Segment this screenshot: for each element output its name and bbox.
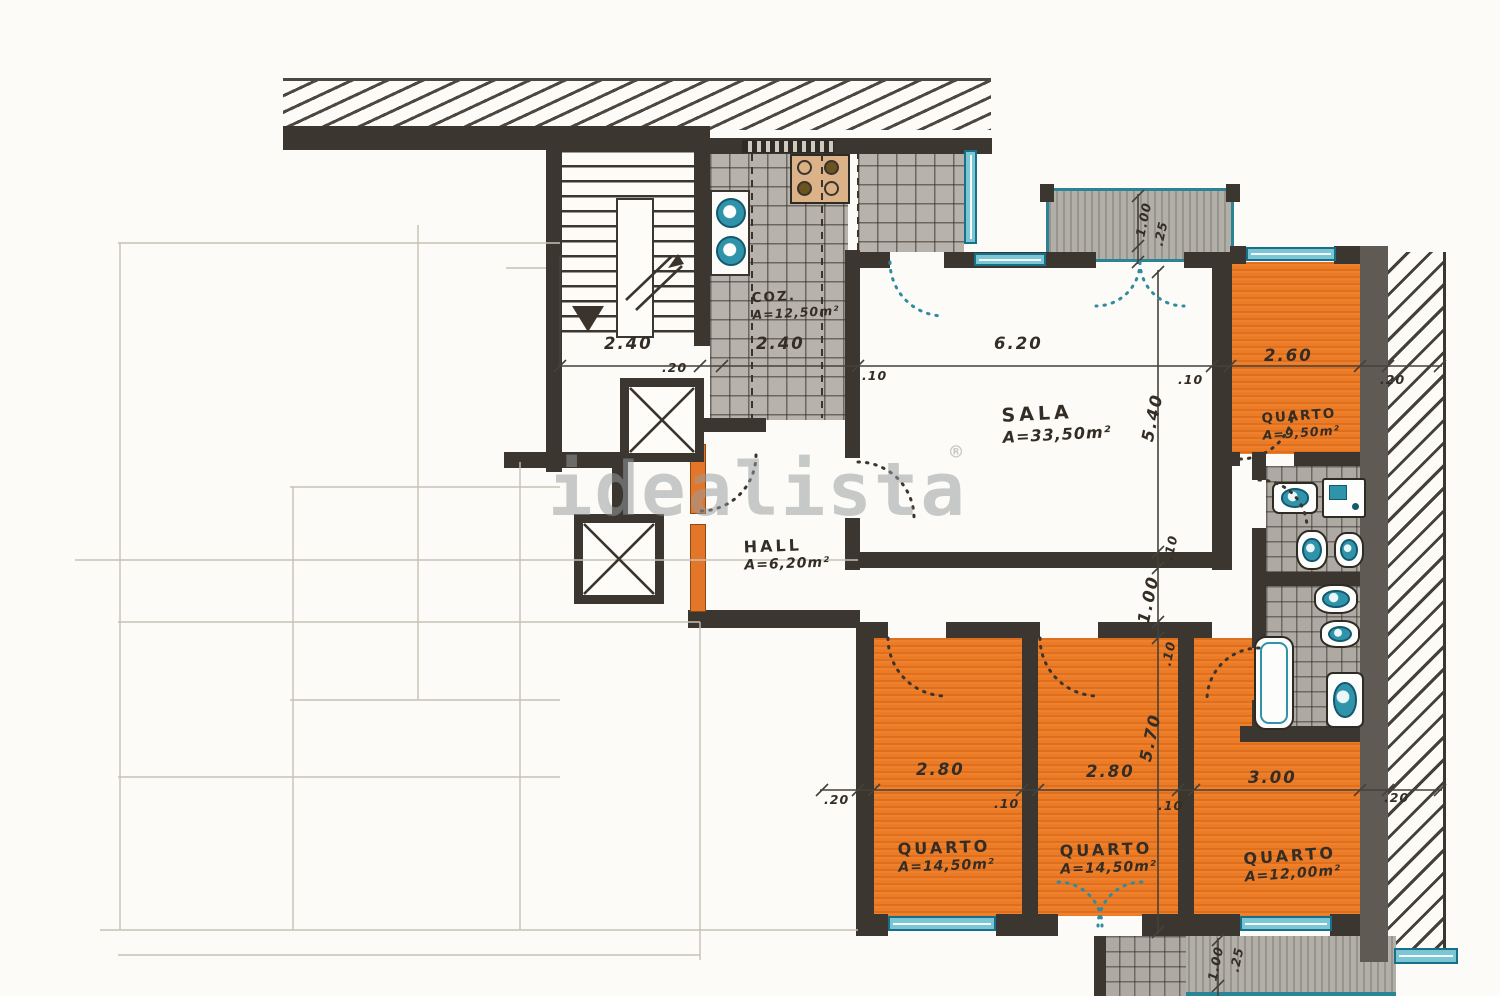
room-label-kitchen: COZ. A=12,50m² xyxy=(751,286,840,323)
dim-living-wall: .10 xyxy=(1178,372,1203,387)
dim-kitchen-width: 2.40 xyxy=(756,334,805,353)
room-label-bedroom3: QUARTO A=14,50m² xyxy=(1059,838,1157,877)
registered-mark-icon: ® xyxy=(950,440,962,464)
floor-plan: COZ. A=12,50m² SALA A=33,50m² HALL A=6,2… xyxy=(0,0,1500,996)
dim-bedroom4-width: 3.00 xyxy=(1248,768,1297,787)
pencil-construction-lines xyxy=(75,225,858,960)
door-arc xyxy=(888,638,946,696)
room-name: QUARTO xyxy=(897,836,994,858)
dim-bedroom1-width: 2.60 xyxy=(1264,346,1313,365)
dim-left-wall: .20 xyxy=(824,792,849,807)
dim-stair-width: 2.40 xyxy=(604,334,653,353)
watermark-text: idealista xyxy=(548,444,952,536)
room-label-bedroom1: QUARTO A=9,50m² xyxy=(1261,405,1341,442)
door-arc xyxy=(1207,648,1259,700)
dim-bedroom2-width: 2.80 xyxy=(916,760,965,779)
dim-wall-b: .10 xyxy=(1158,798,1183,813)
door-arc xyxy=(1096,262,1140,306)
room-area: A=6,20m² xyxy=(744,555,830,574)
room-label-living: SALA A=33,50m² xyxy=(1001,399,1112,447)
room-area: A=14,50m² xyxy=(898,856,995,875)
room-label-bedroom4: QUARTO A=12,00m² xyxy=(1243,843,1342,886)
dim-stair-wall: .20 xyxy=(662,360,687,375)
dim-right-wall: .20 xyxy=(1380,372,1405,387)
door-arc xyxy=(1259,480,1307,528)
dim-outer-wall: .20 xyxy=(1384,790,1409,805)
room-label-bedroom2: QUARTO A=14,50m² xyxy=(897,836,995,875)
room-name: QUARTO xyxy=(1059,838,1156,860)
dim-bedroom3-width: 2.80 xyxy=(1086,762,1135,781)
kitchen-dashed-lines xyxy=(752,152,858,418)
door-arc xyxy=(890,262,944,316)
door-arc xyxy=(1058,882,1102,926)
dim-wall-a: .10 xyxy=(994,796,1019,811)
idealista-watermark: idealista ® xyxy=(548,444,952,544)
door-arc xyxy=(1040,638,1098,696)
dim-kitchen-wall: .10 xyxy=(862,368,887,383)
room-area: A=14,50m² xyxy=(1060,858,1157,877)
stair-arrow xyxy=(572,254,684,332)
dim-living-width: 6.20 xyxy=(994,334,1043,353)
door-arc xyxy=(1098,882,1142,926)
